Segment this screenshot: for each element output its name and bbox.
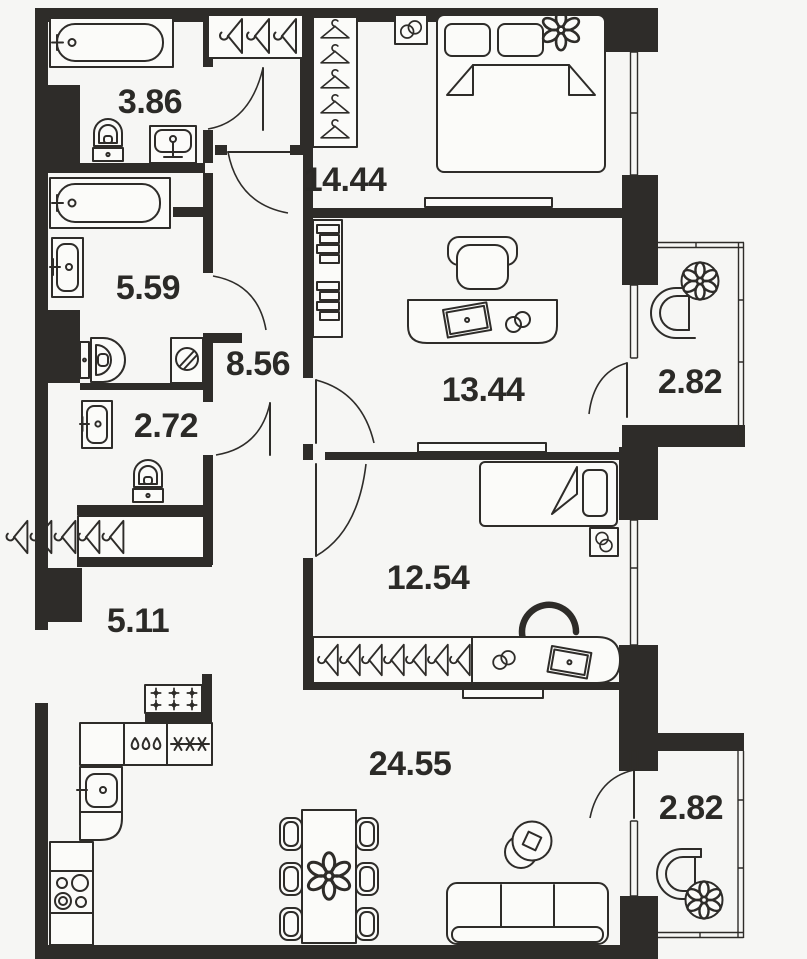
nightstand-icon — [395, 15, 427, 44]
sink-icon — [50, 238, 83, 297]
room-area-label-kids-room: 12.54 — [387, 559, 470, 597]
hob-icon — [145, 685, 202, 713]
single-bed-icon — [480, 462, 617, 526]
window-bedroom — [631, 52, 638, 175]
door-wc — [216, 403, 270, 455]
floor-plan: 3.86 14.44 5.59 8.56 2.72 13.44 2.82 5.1… — [0, 0, 807, 959]
sink-icon — [150, 126, 196, 163]
room-area-label-hallway: 8.56 — [226, 345, 290, 383]
room-area-label-bathroom-small: 3.86 — [118, 83, 182, 121]
door-kids-room — [316, 464, 366, 556]
room-area-label-balcony-top: 2.82 — [658, 363, 722, 401]
side-table-icon — [505, 822, 552, 869]
kitchen-counter-icon — [80, 723, 212, 765]
door-bedroom — [228, 152, 290, 213]
plant-table-icon — [686, 881, 723, 918]
bedroom-closet-icon — [313, 17, 357, 147]
toilet-icon — [93, 119, 123, 161]
tv-console-icon — [463, 689, 543, 698]
nightstand-icon — [590, 528, 618, 556]
wardrobe-icon — [208, 15, 303, 58]
door-office — [316, 380, 374, 443]
room-area-label-balcony-bottom: 2.82 — [659, 789, 723, 827]
room-area-label-wc: 2.72 — [134, 407, 198, 445]
room-area-label-bathroom: 5.59 — [116, 269, 180, 307]
window-office — [631, 285, 638, 358]
sink-icon — [80, 401, 112, 448]
tv-console-icon — [418, 443, 546, 452]
kids-closet-icon — [313, 637, 472, 683]
room-area-label-bedroom: 14.44 — [304, 161, 387, 199]
door-bathroom-small — [208, 68, 263, 130]
room-area-label-corridor: 5.11 — [107, 602, 169, 640]
door-balcony-bottom — [590, 770, 634, 818]
tv-console-icon — [425, 198, 552, 207]
bookshelf-icon — [313, 220, 342, 337]
kids-desk-icon — [472, 637, 620, 683]
stove-icon — [50, 842, 93, 945]
door-bathroom — [213, 276, 266, 330]
kitchen-sink-icon — [77, 767, 122, 812]
window-kids-room — [631, 520, 638, 645]
dining-set-icon — [280, 810, 378, 943]
door-balcony-top — [589, 363, 627, 417]
sofa-icon — [447, 883, 608, 944]
office-chair-icon — [448, 237, 517, 289]
room-area-label-office: 13.44 — [442, 371, 525, 409]
bathtub-icon — [50, 178, 170, 228]
desk-icon — [408, 300, 557, 343]
kitchen-corner-icon — [80, 812, 122, 840]
bathtub-icon — [50, 18, 173, 67]
toilet-icon — [80, 338, 125, 382]
floor-plan-svg: 3.86 14.44 5.59 8.56 2.72 13.44 2.82 5.1… — [0, 0, 807, 959]
plant-table-icon — [682, 262, 719, 299]
washing-machine-icon — [171, 338, 203, 383]
toilet-icon — [133, 460, 163, 502]
room-area-label-kitchen-living: 24.55 — [369, 745, 452, 783]
